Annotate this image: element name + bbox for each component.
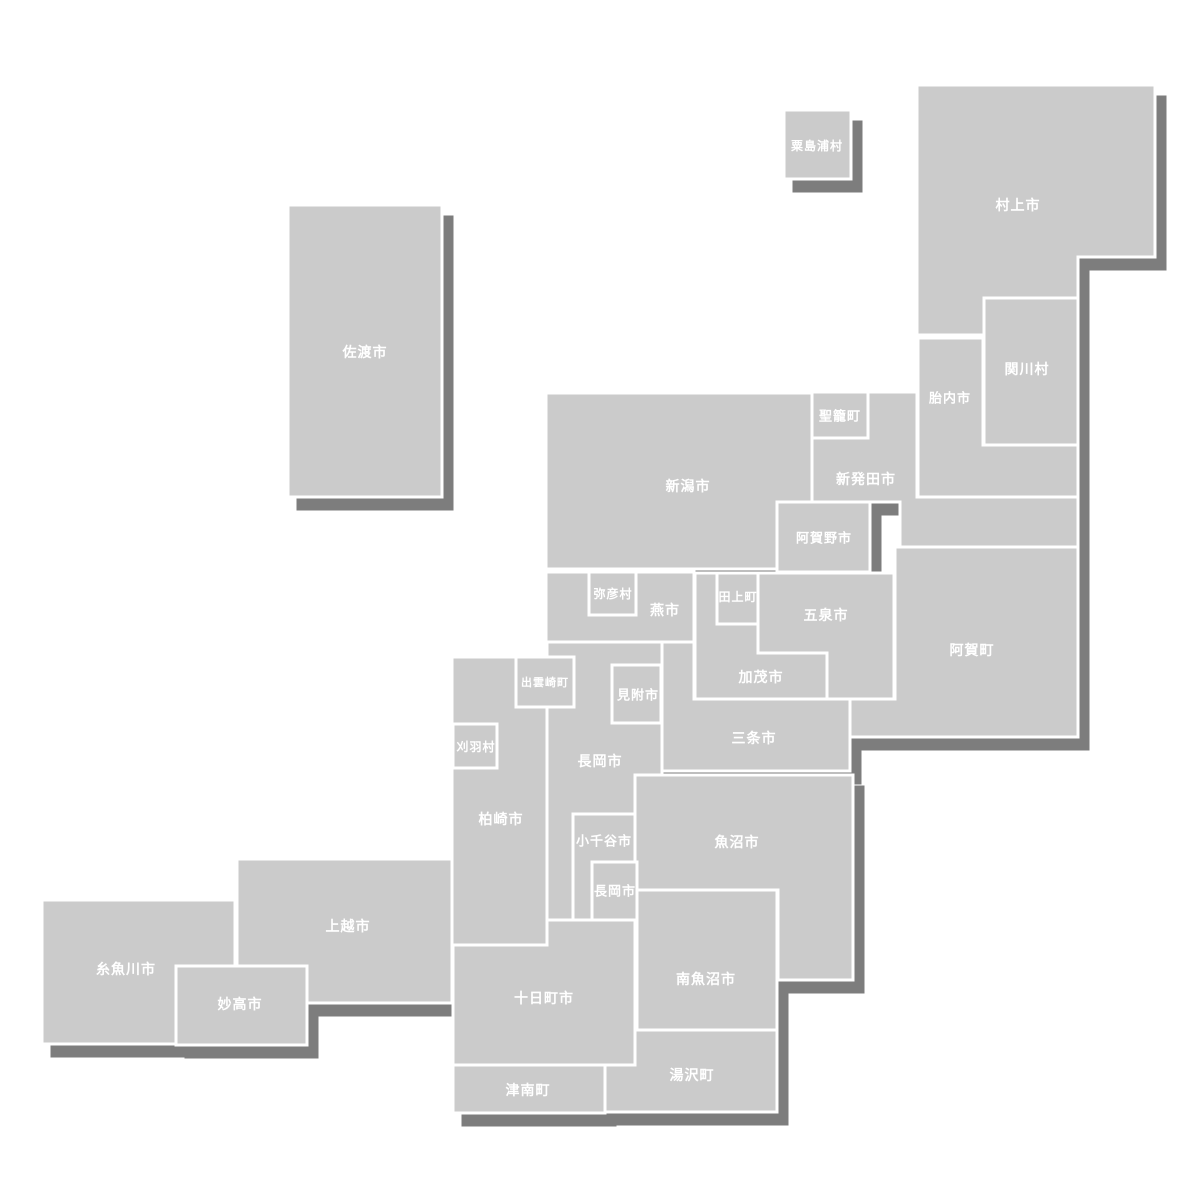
region-awashimaura-mura[interactable] (784, 110, 851, 179)
region-tsunan-machi[interactable] (453, 1065, 605, 1113)
region-yahiko-mura[interactable] (589, 572, 636, 615)
region-agano-shi[interactable] (777, 502, 870, 572)
region-myoko-shi[interactable] (176, 966, 307, 1045)
municipality-tile-layer: 佐渡市粟島浦村村上市関川村胎内市聖籠町新発田市新潟市阿賀町燕市田上町五泉市加茂市… (42, 85, 1155, 1113)
region-tagami-machi[interactable] (717, 573, 758, 624)
niigata-municipality-map: 佐渡市粟島浦村村上市関川村胎内市聖籠町新発田市新潟市阿賀町燕市田上町五泉市加茂市… (0, 0, 1200, 1200)
niigata-map-stage: 佐渡市粟島浦村村上市関川村胎内市聖籠町新発田市新潟市阿賀町燕市田上町五泉市加茂市… (0, 0, 1200, 1200)
region-niigata-shi[interactable] (546, 393, 812, 569)
region-mitsuke-shi[interactable] (612, 665, 661, 723)
region-nagaoka-shi-enclave[interactable] (592, 862, 637, 920)
region-izumozaki-machi[interactable] (516, 657, 574, 707)
region-kariwa-mura[interactable] (453, 724, 497, 768)
region-sado-shi[interactable] (288, 205, 442, 497)
region-seiro-machi[interactable] (812, 392, 868, 438)
region-sekikawa-mura[interactable] (984, 298, 1078, 445)
region-minamiuonuma-shi[interactable] (637, 890, 777, 1030)
